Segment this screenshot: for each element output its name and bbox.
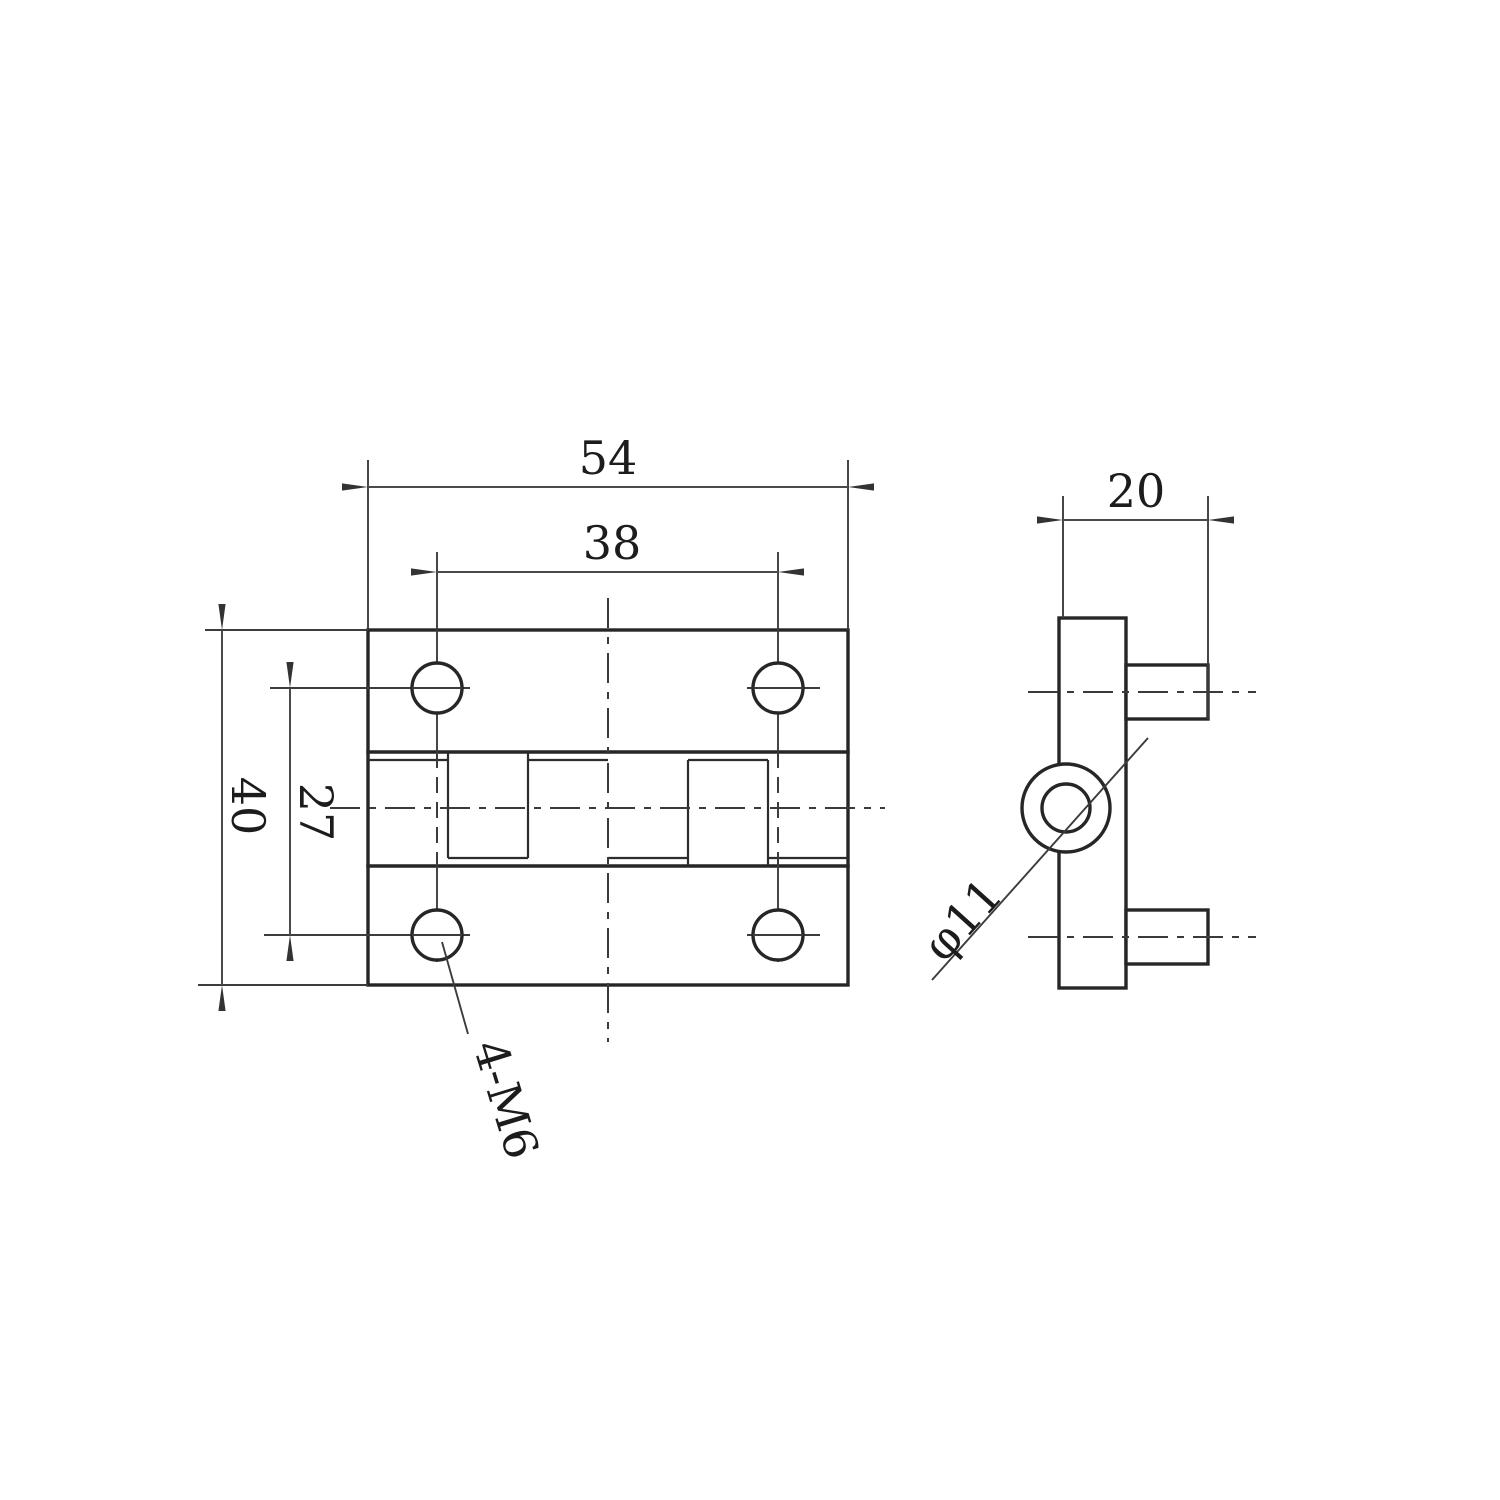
callout-label-phi11: φ11: [912, 868, 1013, 972]
dim-overall-width: 54: [368, 431, 848, 487]
callout-label-4-M6: 4-M6: [462, 1033, 549, 1165]
dim-hole-spacing-horizontal: 38: [437, 516, 778, 572]
barrel-pin-hole: [1042, 784, 1090, 832]
front-view: 54 38 40 27 4-M6: [198, 431, 885, 1165]
barrel: [1022, 764, 1110, 852]
callout-barrel-diameter: φ11: [912, 738, 1148, 980]
dim-label-38: 38: [583, 516, 642, 570]
callout-holes: 4-M6: [442, 942, 550, 1165]
dim-label-54: 54: [579, 431, 638, 485]
dim-overall-height: 40: [221, 630, 275, 985]
dim-label-20: 20: [1107, 464, 1166, 518]
hole-centerlines: [264, 688, 820, 935]
side-view: 20 φ11: [912, 464, 1256, 988]
dim-label-27: 27: [289, 783, 343, 842]
dim-hole-spacing-vertical: 27: [289, 688, 343, 935]
dim-label-40: 40: [221, 777, 275, 836]
drawing-canvas: 54 38 40 27 4-M6: [0, 0, 1500, 1500]
callout-leader-line: [442, 942, 468, 1034]
hinge-technical-drawing: 54 38 40 27 4-M6: [0, 0, 1500, 1500]
